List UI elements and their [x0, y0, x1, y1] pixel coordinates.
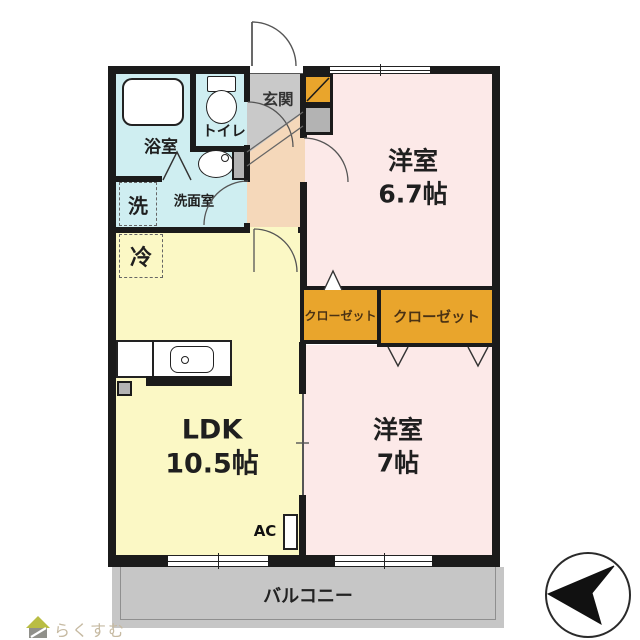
wall-partition-upper	[299, 342, 306, 394]
washroom-column	[232, 150, 246, 180]
entrance-storage-box	[303, 105, 333, 135]
kitchen-drain	[181, 356, 189, 364]
ac-unit	[283, 514, 298, 550]
kitchen-base-wall	[146, 376, 232, 386]
closet-left: クローゼット	[300, 286, 381, 344]
toilet-label: トイレ	[202, 125, 246, 141]
closet-right-label: クローゼット	[393, 306, 480, 327]
wall-bottom-right	[432, 555, 500, 567]
entrance-doorway	[250, 66, 303, 74]
window-bedroom2	[335, 555, 432, 567]
ldk-name: LDK	[165, 413, 259, 447]
washer-space: 洗	[119, 182, 157, 226]
ldk-label: LDK 10.5帖	[165, 413, 259, 481]
kitchen-divider	[152, 342, 154, 376]
bedroom2-size: 7帖	[373, 447, 423, 480]
wall-top-right	[430, 66, 500, 74]
wall-top-left	[108, 66, 250, 74]
water-heater-box	[117, 381, 132, 396]
bathroom-label: 浴室	[144, 139, 178, 158]
washbasin-faucet	[221, 154, 229, 162]
wall-bath-toilet	[190, 74, 196, 150]
floorplan: クローゼット クローゼット 洗 冷 AC	[0, 0, 640, 640]
wall-left	[108, 66, 116, 567]
toilet-bowl	[206, 90, 237, 124]
wall-partition-lower	[299, 495, 306, 557]
washroom-label: 洗面室	[174, 195, 215, 210]
logo-text: らくすむ	[54, 617, 126, 640]
ldk-size: 10.5帖	[165, 447, 259, 481]
sliding-partition-line	[302, 394, 304, 495]
ac-label: AC	[254, 523, 277, 540]
bedroom2-name: 洋室	[373, 415, 423, 448]
closet-left-label: クローゼット	[304, 307, 376, 324]
wall-ldk-top-a	[116, 227, 250, 233]
bedroom1-size: 6.7帖	[378, 178, 447, 211]
fridge-label: 冷	[130, 240, 152, 272]
washbasin	[198, 150, 234, 178]
balcony-label: バルコニー	[263, 587, 353, 607]
front-door-arc	[252, 22, 296, 66]
window-bedroom1	[330, 66, 430, 74]
wall-water-hall-a	[244, 74, 250, 102]
bedroom1-name: 洋室	[378, 146, 447, 179]
closet-right: クローゼット	[377, 286, 496, 347]
washer-label: 洗	[128, 190, 148, 219]
bathtub	[122, 78, 184, 126]
kitchen-sink	[170, 346, 214, 373]
bedroom1-label: 洋室 6.7帖	[378, 146, 447, 211]
window-ldk	[168, 555, 268, 567]
bedroom2-label: 洋室 7帖	[373, 415, 423, 480]
wall-hall-bedroom1-b	[300, 182, 307, 288]
pipe-space-box	[303, 74, 333, 105]
entrance-label: 玄関	[262, 91, 293, 108]
fridge-space: 冷	[119, 234, 163, 278]
wall-top-mid	[303, 66, 330, 74]
wall-bottom-left	[108, 555, 168, 567]
